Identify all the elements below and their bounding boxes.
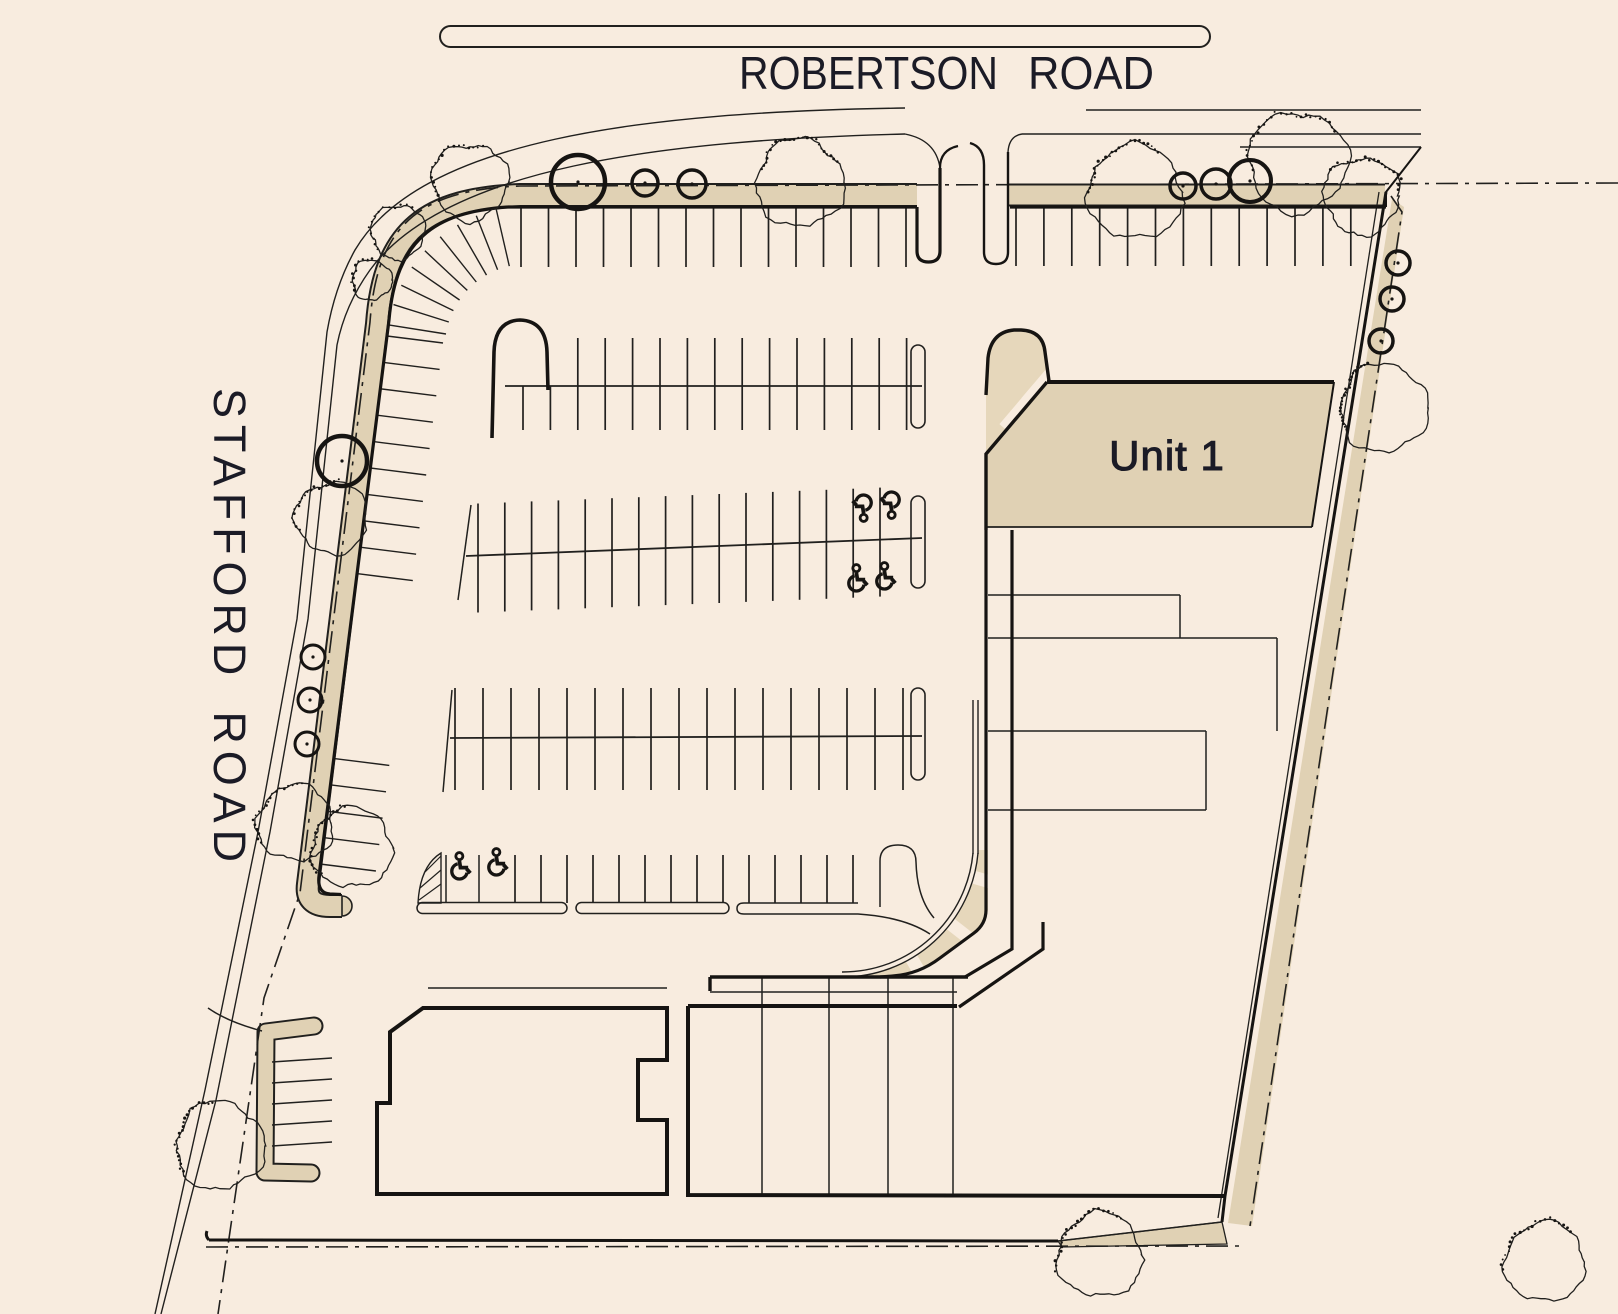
svg-text:ROBERTSON: ROBERTSON [739,47,998,99]
svg-text:ROAD: ROAD [1028,47,1154,99]
svg-text:Unit 1: Unit 1 [1109,432,1225,479]
